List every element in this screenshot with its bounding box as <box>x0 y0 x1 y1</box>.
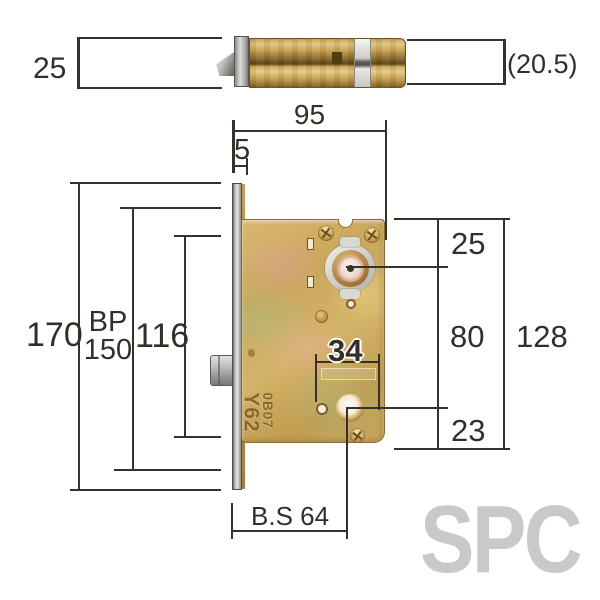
dim-label-backset: B.S 64 <box>251 503 329 529</box>
dim-label-width: 95 <box>233 101 386 129</box>
dim-label-top-depth: (20.5) <box>507 51 578 78</box>
dim-line <box>394 448 510 451</box>
dim-line <box>70 182 221 185</box>
lever-hole <box>316 403 328 415</box>
leader-line-cylinder <box>346 266 448 269</box>
dim-label-bp: BP 150 <box>83 309 133 364</box>
dim-label-top-height: 25 <box>33 54 66 84</box>
dim-line <box>78 87 222 90</box>
dim-line <box>120 207 221 210</box>
dim-label-right-outer: 128 <box>516 321 568 352</box>
dim-label-right-mid: 80 <box>450 321 484 352</box>
dim-line <box>385 120 388 240</box>
dim-line <box>394 218 510 221</box>
lock-dimension-diagram: 25 (20.5) Y62 0B07 95 5 <box>0 0 600 600</box>
bp-text: BP <box>83 309 133 337</box>
stamp-model-code: Y62 <box>241 390 262 436</box>
collar-tab-bottom <box>340 289 360 299</box>
dim-line <box>315 354 318 402</box>
dim-line <box>407 83 505 86</box>
lock-case: Y62 0B07 <box>241 219 385 443</box>
front-latch-bolt <box>210 355 233 386</box>
dim-line <box>114 469 221 472</box>
latch-seam <box>218 356 220 385</box>
dim-label-left-outer: 170 <box>26 318 83 352</box>
case-top-notch <box>338 219 353 228</box>
dim-label-right-top: 25 <box>451 228 485 259</box>
leader-line-spindle <box>348 407 448 410</box>
edge-hole <box>248 349 255 357</box>
dim-line <box>503 218 506 449</box>
dim-line <box>174 436 221 439</box>
screw-top-right <box>361 224 383 246</box>
guide-slot <box>307 238 314 250</box>
dim-line <box>407 39 505 42</box>
bp-value: 150 <box>83 337 133 365</box>
dim-line <box>77 37 80 90</box>
dim-line <box>231 503 234 539</box>
top-view-silver-band <box>354 39 371 87</box>
dim-label-right-bottom: 23 <box>451 415 485 446</box>
watermark-spc: SPC <box>420 492 580 588</box>
dim-line <box>503 39 506 86</box>
collar-tab-top <box>340 237 360 247</box>
dim-label-left-inner: 116 <box>135 319 189 353</box>
guide-slot <box>307 276 314 288</box>
top-view-body-slot <box>332 52 342 64</box>
dim-line <box>70 489 221 492</box>
dim-line <box>437 218 440 449</box>
top-view-lock-body <box>249 38 406 88</box>
rivet <box>315 310 328 323</box>
stamp-date-code: 0B07 <box>260 390 274 432</box>
leader-line-backset <box>346 407 349 539</box>
dim-line <box>378 354 381 410</box>
dim-line <box>174 235 221 238</box>
dim-label-offset: 5 <box>234 136 250 165</box>
dim-label-hole-span: 34 <box>328 335 362 366</box>
dim-line <box>78 37 222 40</box>
screw-top-left <box>315 222 337 244</box>
small-hole <box>346 299 356 309</box>
screw-bottom <box>347 425 368 446</box>
stamped-panel <box>321 368 376 380</box>
top-view-faceplate <box>234 36 249 87</box>
